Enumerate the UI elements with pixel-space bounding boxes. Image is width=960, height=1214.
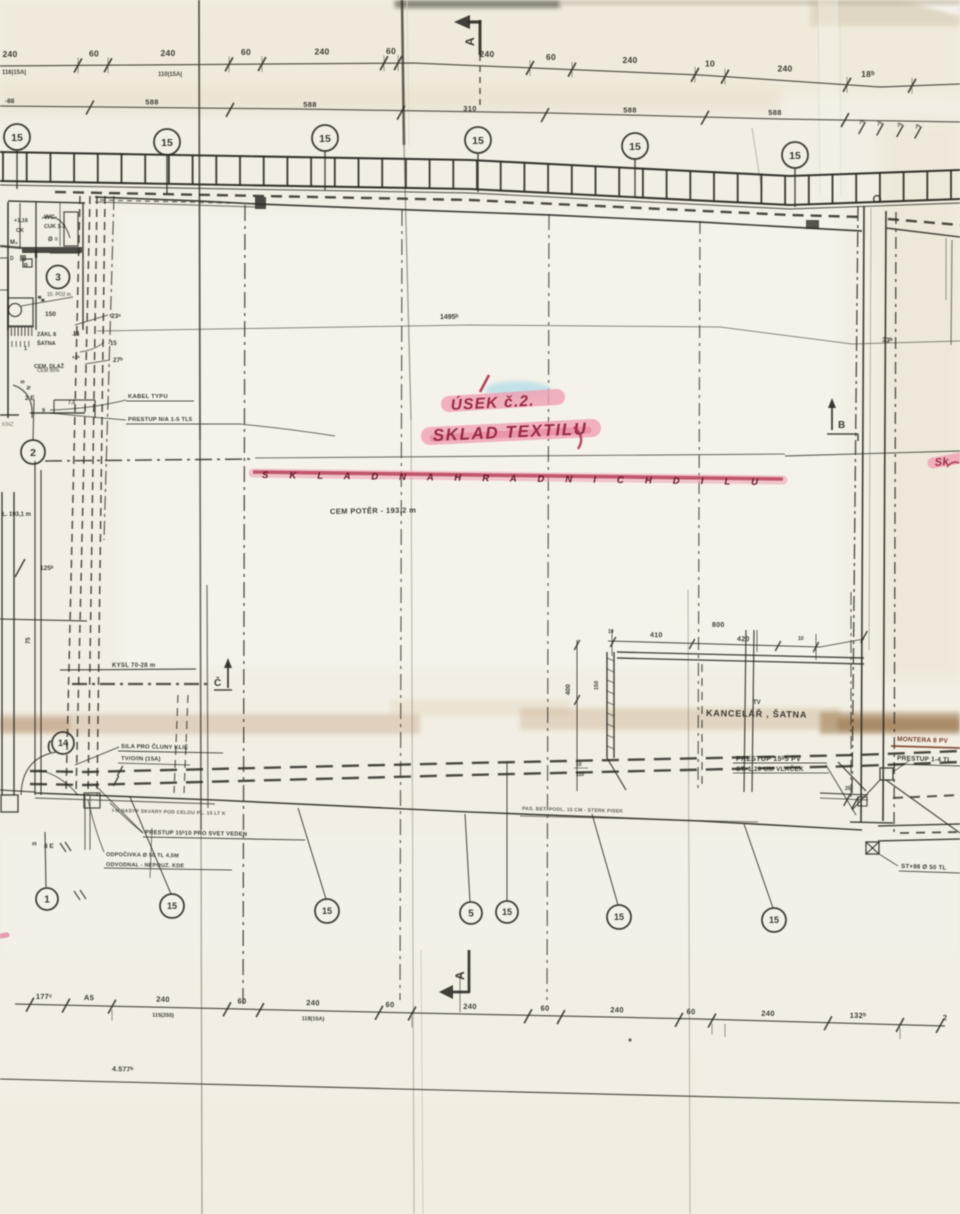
svg-text:240: 240 <box>306 998 320 1007</box>
svg-text:400: 400 <box>565 684 572 695</box>
svg-text:60: 60 <box>386 46 396 56</box>
svg-text:310: 310 <box>463 104 476 113</box>
svg-text:10: 10 <box>576 762 582 768</box>
svg-text:75: 75 <box>26 637 32 644</box>
svg-text:4.577ᵇ: 4.577ᵇ <box>112 1066 134 1074</box>
svg-text:1: 1 <box>44 895 50 906</box>
svg-text:2: 2 <box>30 447 36 459</box>
svg-text:420: 420 <box>737 636 750 643</box>
svg-text:CK: CK <box>16 228 24 234</box>
svg-text:CEM 95%: CEM 95% <box>37 368 60 374</box>
svg-text:240: 240 <box>463 1002 477 1011</box>
svg-text:240: 240 <box>622 55 637 65</box>
svg-text:7ᵇ: 7ᵇ <box>897 122 903 129</box>
svg-text:240: 240 <box>761 1009 775 1018</box>
svg-text:177ᶜ: 177ᶜ <box>36 992 53 1001</box>
svg-text:(: ( <box>47 738 52 753</box>
svg-text:A5: A5 <box>84 993 94 1002</box>
svg-text:60: 60 <box>540 1004 549 1013</box>
svg-text:240: 240 <box>314 47 329 57</box>
svg-text:800: 800 <box>712 622 725 629</box>
svg-text:60: 60 <box>237 997 246 1006</box>
svg-text:15: 15 <box>73 331 79 337</box>
svg-text:115(255): 115(255) <box>152 1013 174 1019</box>
svg-text:R: R <box>24 263 28 269</box>
svg-text:15: 15 <box>789 150 801 162</box>
svg-text:125ᵇ: 125ᵇ <box>40 565 54 572</box>
svg-text:15: 15 <box>161 137 173 149</box>
svg-text:10. PO2 m: 10. PO2 m <box>47 292 71 298</box>
svg-text:2: 2 <box>943 1013 948 1022</box>
svg-text:15: 15 <box>319 133 331 145</box>
svg-text:60: 60 <box>546 52 556 62</box>
svg-text:TV/O/IN (15A): TV/O/IN (15A) <box>121 756 161 763</box>
svg-text:60: 60 <box>686 1007 695 1016</box>
svg-text:KYSL 70-28 m: KYSL 70-28 m <box>112 663 156 669</box>
svg-text:15: 15 <box>472 135 484 147</box>
svg-text:60: 60 <box>385 1000 394 1009</box>
svg-text:60: 60 <box>241 47 251 57</box>
svg-text:7.3: 7.3 <box>68 400 75 406</box>
svg-text:15: 15 <box>502 907 512 917</box>
svg-text:15: 15 <box>629 141 641 153</box>
svg-text:M₃: M₃ <box>10 240 18 246</box>
svg-text:+1,16: +1,16 <box>14 218 28 224</box>
svg-text:1495ᵇ: 1495ᵇ <box>440 314 459 321</box>
svg-text:7ᵇ: 7ᵇ <box>859 119 865 126</box>
svg-text:D: D <box>10 256 14 262</box>
svg-text:410: 410 <box>650 632 663 639</box>
svg-text:588: 588 <box>768 108 781 117</box>
svg-text:TV: TV <box>753 700 761 706</box>
svg-text:110|15A|: 110|15A| <box>158 72 182 78</box>
svg-text:18ᵇ: 18ᵇ <box>861 69 875 79</box>
svg-text:10: 10 <box>705 59 715 69</box>
svg-text:7ᵇ: 7ᵇ <box>915 124 921 131</box>
svg-text:PRESTUP N/A 1-5 TL5: PRESTUP N/A 1-5 TL5 <box>128 417 193 423</box>
svg-text:118(15A): 118(15A) <box>302 1016 325 1022</box>
svg-text:14: 14 <box>58 738 68 748</box>
svg-text:15: 15 <box>614 912 624 922</box>
svg-text:▀▄: ▀▄ <box>38 295 45 302</box>
svg-text:10: 10 <box>608 629 614 635</box>
svg-text:588: 588 <box>623 106 636 115</box>
svg-text:Ø ≡: Ø ≡ <box>48 237 58 243</box>
svg-text:150: 150 <box>45 311 56 318</box>
svg-text:9: 9 <box>42 408 45 414</box>
svg-text:7ᵇ: 7ᵇ <box>877 121 883 128</box>
svg-text:Ł. 193,1 m: Ł. 193,1 m <box>2 512 31 518</box>
svg-text:CEM POTĚR - 193,2 m: CEM POTĚR - 193,2 m <box>330 505 417 516</box>
svg-text:10: 10 <box>798 636 804 642</box>
svg-text:60: 60 <box>89 48 99 58</box>
svg-text:A: A <box>463 37 477 46</box>
svg-text:588: 588 <box>303 100 316 109</box>
svg-text:CUK 1-3: CUK 1-3 <box>44 224 65 230</box>
svg-text:23ᵃ: 23ᵃ <box>111 313 121 320</box>
svg-text:B: B <box>838 420 845 431</box>
svg-text:25: 25 <box>845 786 851 792</box>
svg-text:240: 240 <box>777 64 792 74</box>
svg-text:150: 150 <box>594 681 600 690</box>
svg-text:15: 15 <box>167 901 177 911</box>
svg-text:ODPOČIVKA Ø 50 TL 4,5M: ODPOČIVKA Ø 50 TL 4,5M <box>106 851 179 859</box>
svg-text:132ᵇ: 132ᵇ <box>850 1011 867 1020</box>
svg-text:-88: -88 <box>5 98 15 105</box>
svg-text:240: 240 <box>160 48 175 58</box>
svg-text:ZÁKL 8: ZÁKL 8 <box>37 331 56 338</box>
svg-text:-15: -15 <box>108 341 117 347</box>
svg-text:1: 1 <box>24 346 27 352</box>
svg-text:15: 15 <box>769 915 779 925</box>
svg-text:ŠATNA: ŠATNA <box>37 339 56 347</box>
svg-text:240: 240 <box>610 1005 624 1014</box>
svg-text:15: 15 <box>322 906 332 916</box>
svg-text:KINZ: KINZ <box>2 422 13 428</box>
svg-text:588: 588 <box>145 98 158 107</box>
svg-text:Č: Č <box>214 676 221 689</box>
svg-text:240: 240 <box>479 49 494 59</box>
svg-text:27ᵇ: 27ᵇ <box>113 357 123 364</box>
svg-text:KANCELÁŘ , ŠATNA: KANCELÁŘ , ŠATNA <box>706 707 807 720</box>
svg-text:3: 3 <box>55 273 61 284</box>
svg-text:KABEL TYPU: KABEL TYPU <box>128 394 168 400</box>
svg-text:240: 240 <box>156 995 170 1004</box>
svg-text:15: 15 <box>11 132 23 144</box>
svg-text:116|15A|: 116|15A| <box>2 70 26 76</box>
svg-text:240: 240 <box>2 49 17 59</box>
svg-text:5: 5 <box>468 909 474 920</box>
